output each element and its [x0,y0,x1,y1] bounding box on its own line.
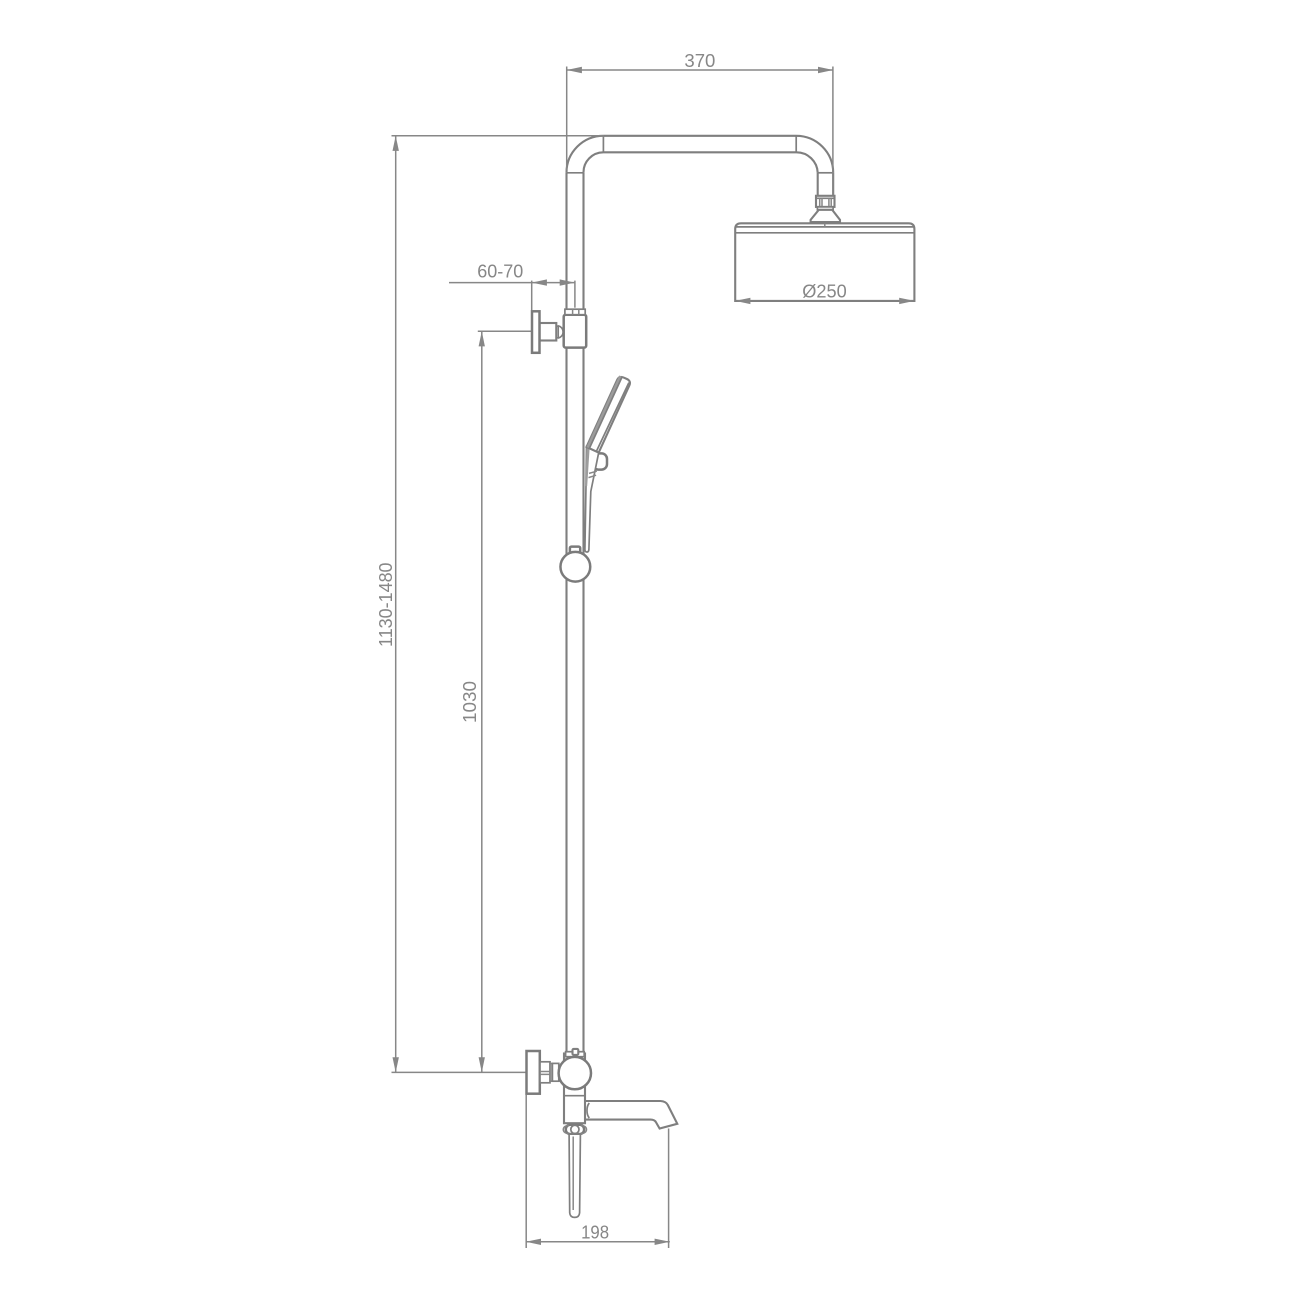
svg-text:198: 198 [581,1222,609,1243]
svg-text:1130-1480: 1130-1480 [375,562,396,647]
svg-text:370: 370 [684,50,715,71]
svg-text:60-70: 60-70 [477,261,523,282]
svg-text:Ø250: Ø250 [802,281,847,302]
svg-text:1030: 1030 [459,681,480,723]
